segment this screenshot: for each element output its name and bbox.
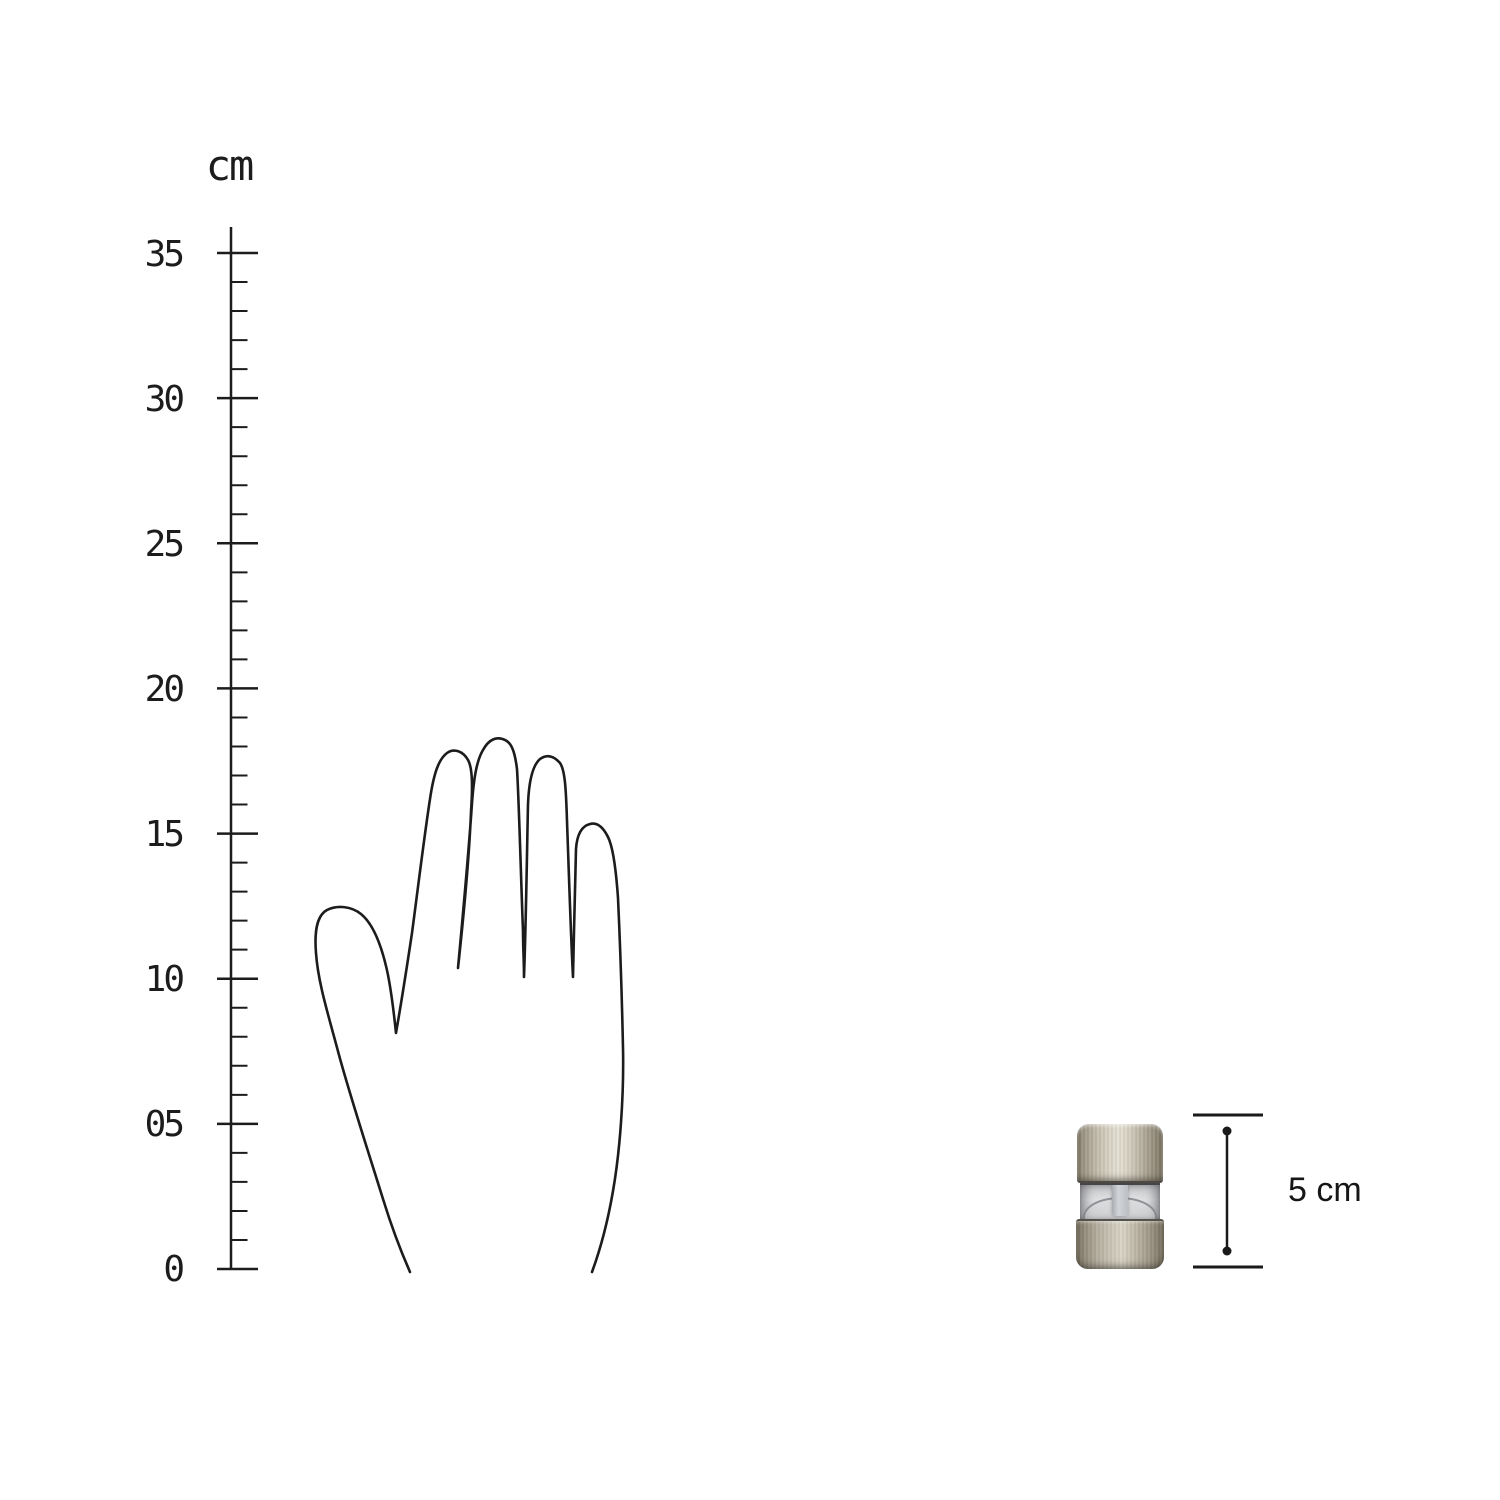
- ruler-label-35: 35: [145, 234, 183, 275]
- size-comparison-diagram: cm 35 30 25 20 15 10 05 0 5 cm: [0, 0, 1500, 1500]
- ruler-label-15: 15: [145, 814, 183, 855]
- ruler-label-20: 20: [145, 669, 184, 710]
- ruler-label-10: 10: [145, 959, 184, 1000]
- ruler-label-05: 05: [145, 1104, 183, 1145]
- ruler: cm 35 30 25 20 15 10 05 0: [145, 141, 258, 1290]
- product-steel-base: [1076, 1219, 1164, 1269]
- hand-outline-illustration: [315, 738, 623, 1272]
- size-indicator: 5 cm: [1193, 1115, 1362, 1267]
- ruler-tick-labels: 35 30 25 20 15 10 05 0: [145, 234, 184, 1290]
- ruler-unit-label: cm: [206, 141, 253, 190]
- dimension-label: 5 cm: [1288, 1171, 1362, 1209]
- diagram-svg: cm 35 30 25 20 15 10 05 0 5 cm: [0, 0, 1500, 1500]
- dimension-bottom-dot: [1223, 1247, 1232, 1256]
- product-center-shaft: [1112, 1185, 1128, 1216]
- product-acrylic-window: [1080, 1183, 1160, 1221]
- ruler-label-0: 0: [163, 1249, 183, 1290]
- product-steel-cap: [1077, 1124, 1163, 1183]
- ruler-ticks: [217, 253, 258, 1269]
- ruler-label-25: 25: [145, 524, 183, 565]
- product-photo-mini-grinder: [1076, 1124, 1164, 1267]
- ruler-label-30: 30: [145, 379, 184, 420]
- dimension-top-dot: [1223, 1127, 1232, 1136]
